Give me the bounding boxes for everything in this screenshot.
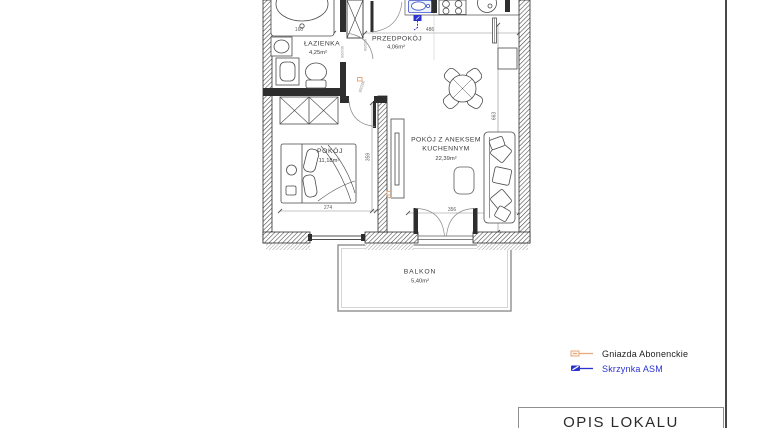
dim-bedroom-width: 274	[324, 205, 333, 211]
washbasin	[271, 37, 292, 56]
kitchen-cabinet	[498, 48, 517, 69]
door-size-bedroom: 90/20h	[357, 80, 366, 93]
bedroom-window	[308, 234, 365, 241]
dim-bathtub: 160	[295, 27, 304, 33]
legend-label-skrzynka-asm: Skrzynka ASM	[602, 364, 663, 374]
interior-wall-center	[378, 96, 387, 232]
label-salon-line2: KUCHENNYM	[422, 146, 469, 153]
pouf	[454, 167, 474, 194]
exterior-wall-bottom-right	[473, 232, 530, 243]
area-balkon: 5,40m²	[411, 279, 429, 285]
exterior-wall-bottom-middle	[365, 232, 418, 243]
kitchen-sink	[409, 1, 432, 13]
door-size-bathroom: 90/20h	[340, 46, 345, 58]
bedroom-wardrobe	[280, 97, 338, 124]
sheet-border-line	[725, 0, 727, 428]
label-pokoj: POKÓJ	[317, 146, 343, 155]
asm-box-icon	[570, 364, 594, 373]
label-balkon: BALKON	[404, 269, 436, 276]
label-przedpokoj: PRZEDPOKÓJ	[372, 34, 422, 43]
area-przedpokoj: 4,06m²	[387, 45, 405, 51]
asm-box-mark	[414, 16, 421, 31]
area-pokoj: 11,18m²	[319, 158, 340, 164]
living-room	[391, 0, 519, 223]
doors	[346, 33, 478, 236]
dim-living-depth: 663	[492, 112, 498, 121]
subscriber-socket-icon	[570, 349, 594, 358]
bathroom-wall-right-upper	[340, 0, 346, 32]
sofa-cushion	[492, 166, 512, 185]
radiator	[493, 18, 497, 43]
washing-machine	[276, 58, 299, 85]
area-lazienka: 4,25m²	[309, 50, 327, 56]
toilet	[306, 63, 327, 88]
balcony-door-threshold	[418, 236, 473, 240]
dim-balcony-door: 356	[448, 207, 457, 213]
exterior-wall-right	[519, 0, 530, 243]
bathroom-wall-bottom	[263, 88, 340, 96]
legend-item-gniazda-abonenckie: Gniazda Abonenckie	[570, 347, 688, 360]
hall-wardrobe	[347, 0, 363, 38]
hallway	[347, 0, 402, 38]
dining-set	[441, 67, 484, 111]
title-block-heading: OPIS LOKALU	[519, 414, 723, 428]
label-salon-line1: POKÓJ Z ANEKSEM	[411, 135, 481, 144]
floor-plan-sheet: ŁAZIENKA 4,25m² PRZEDPOKÓJ 4,06m² POKÓJ …	[0, 0, 760, 428]
label-lazienka: ŁAZIENKA	[304, 41, 340, 48]
exterior-wall-bottom-left	[263, 232, 310, 243]
balcony-french-door	[414, 208, 478, 236]
dim-bedroom-depth: 359	[366, 153, 372, 162]
legend-item-skrzynka-asm: Skrzynka ASM	[570, 362, 688, 375]
cooktop	[439, 0, 466, 15]
bedside-lamp	[287, 165, 297, 175]
counter-end	[505, 0, 510, 12]
sofa	[484, 132, 515, 223]
hall-wall-stub-left	[340, 96, 349, 103]
insulation-strips	[266, 244, 528, 251]
door-size-entrance: 90/20h	[363, 39, 368, 51]
dim-living-width: 486	[426, 27, 435, 33]
entrance-door	[371, 1, 403, 32]
tv-cabinet	[391, 119, 404, 198]
exterior-wall-left	[263, 0, 272, 243]
opis-lokalu-title-box: OPIS LOKALU	[518, 407, 724, 428]
kitchen-counter	[405, 0, 519, 15]
legend: Gniazda Abonenckie Skrzynka ASM	[570, 347, 688, 377]
area-salon: 22,39m²	[435, 156, 456, 162]
round-sink	[478, 0, 497, 13]
legend-label-gniazda: Gniazda Abonenckie	[602, 349, 688, 359]
